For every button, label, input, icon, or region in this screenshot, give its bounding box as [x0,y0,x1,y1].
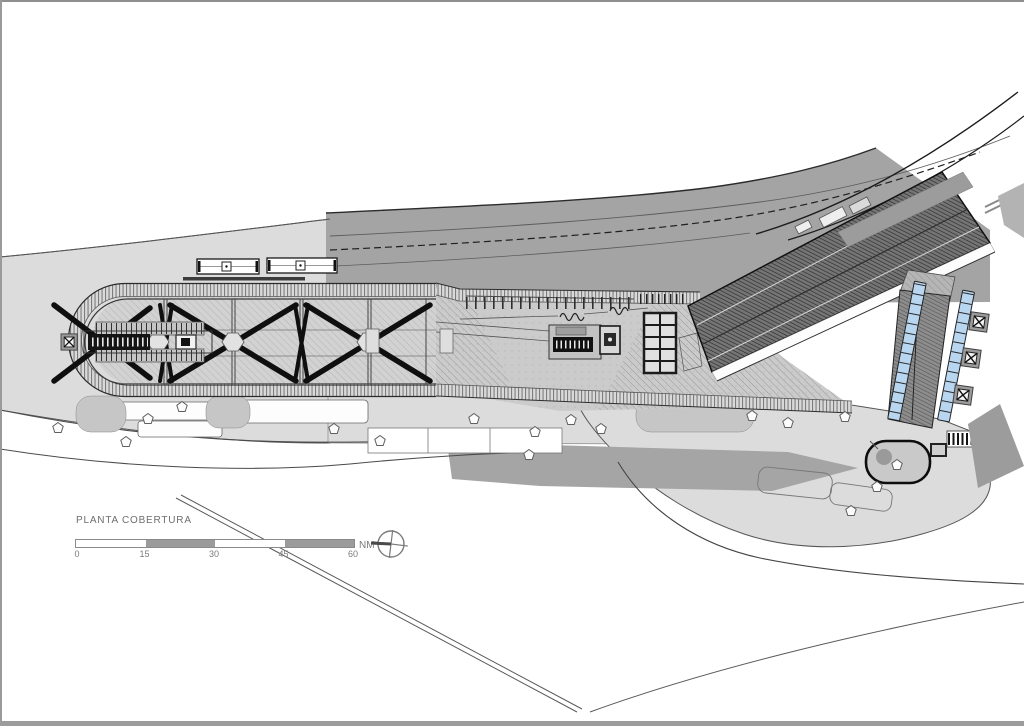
tree [121,437,131,447]
plaza-opening [440,329,453,353]
skylight-xbox [61,334,77,350]
skylight-xbox [969,312,989,332]
page-border-top [0,0,1024,2]
page-border-bottom [0,721,1024,726]
scale-tick-label: 45 [278,549,288,559]
plaza-opening [366,329,379,353]
page-border-left [0,0,2,726]
pond-island [876,449,892,465]
grass-tab [76,396,126,432]
stair-strip [96,322,204,335]
east-road-wedge [998,183,1024,238]
skylight-xbox [961,348,981,368]
drawing-title: PLANTA COBERTURA [76,515,192,526]
scale-tick-label: 0 [74,549,79,559]
tree [53,423,63,433]
scale-segment [285,540,355,547]
monitor-connector [183,277,305,281]
central-elevator [600,326,620,354]
louver-strip [947,431,973,447]
north-arrow: NM [358,527,410,563]
service-box [931,444,946,456]
scale-tick-label: 30 [209,549,219,559]
site-plan-drawing [0,0,1024,726]
drawing-sheet: PLANTA COBERTURA 0 15 30 45 60 NM [0,0,1024,726]
scale-segment [215,540,285,547]
elevator-west-cab [181,338,190,346]
scale-segment [76,540,146,547]
site-boundary-southeast [590,602,1024,712]
scale-segment [146,540,216,547]
southeast-road-wedge [968,404,1024,488]
scale-tick-label: 60 [348,549,358,559]
grass-tab [206,396,250,428]
scale-labels: 0 15 30 45 60 [75,549,353,561]
scale-bar [75,539,355,548]
skylight-xbox [953,385,973,405]
central-escalator [549,325,601,359]
stair-strip [96,349,204,362]
planting-bed [236,400,368,423]
scale-tick-label: 15 [139,549,149,559]
